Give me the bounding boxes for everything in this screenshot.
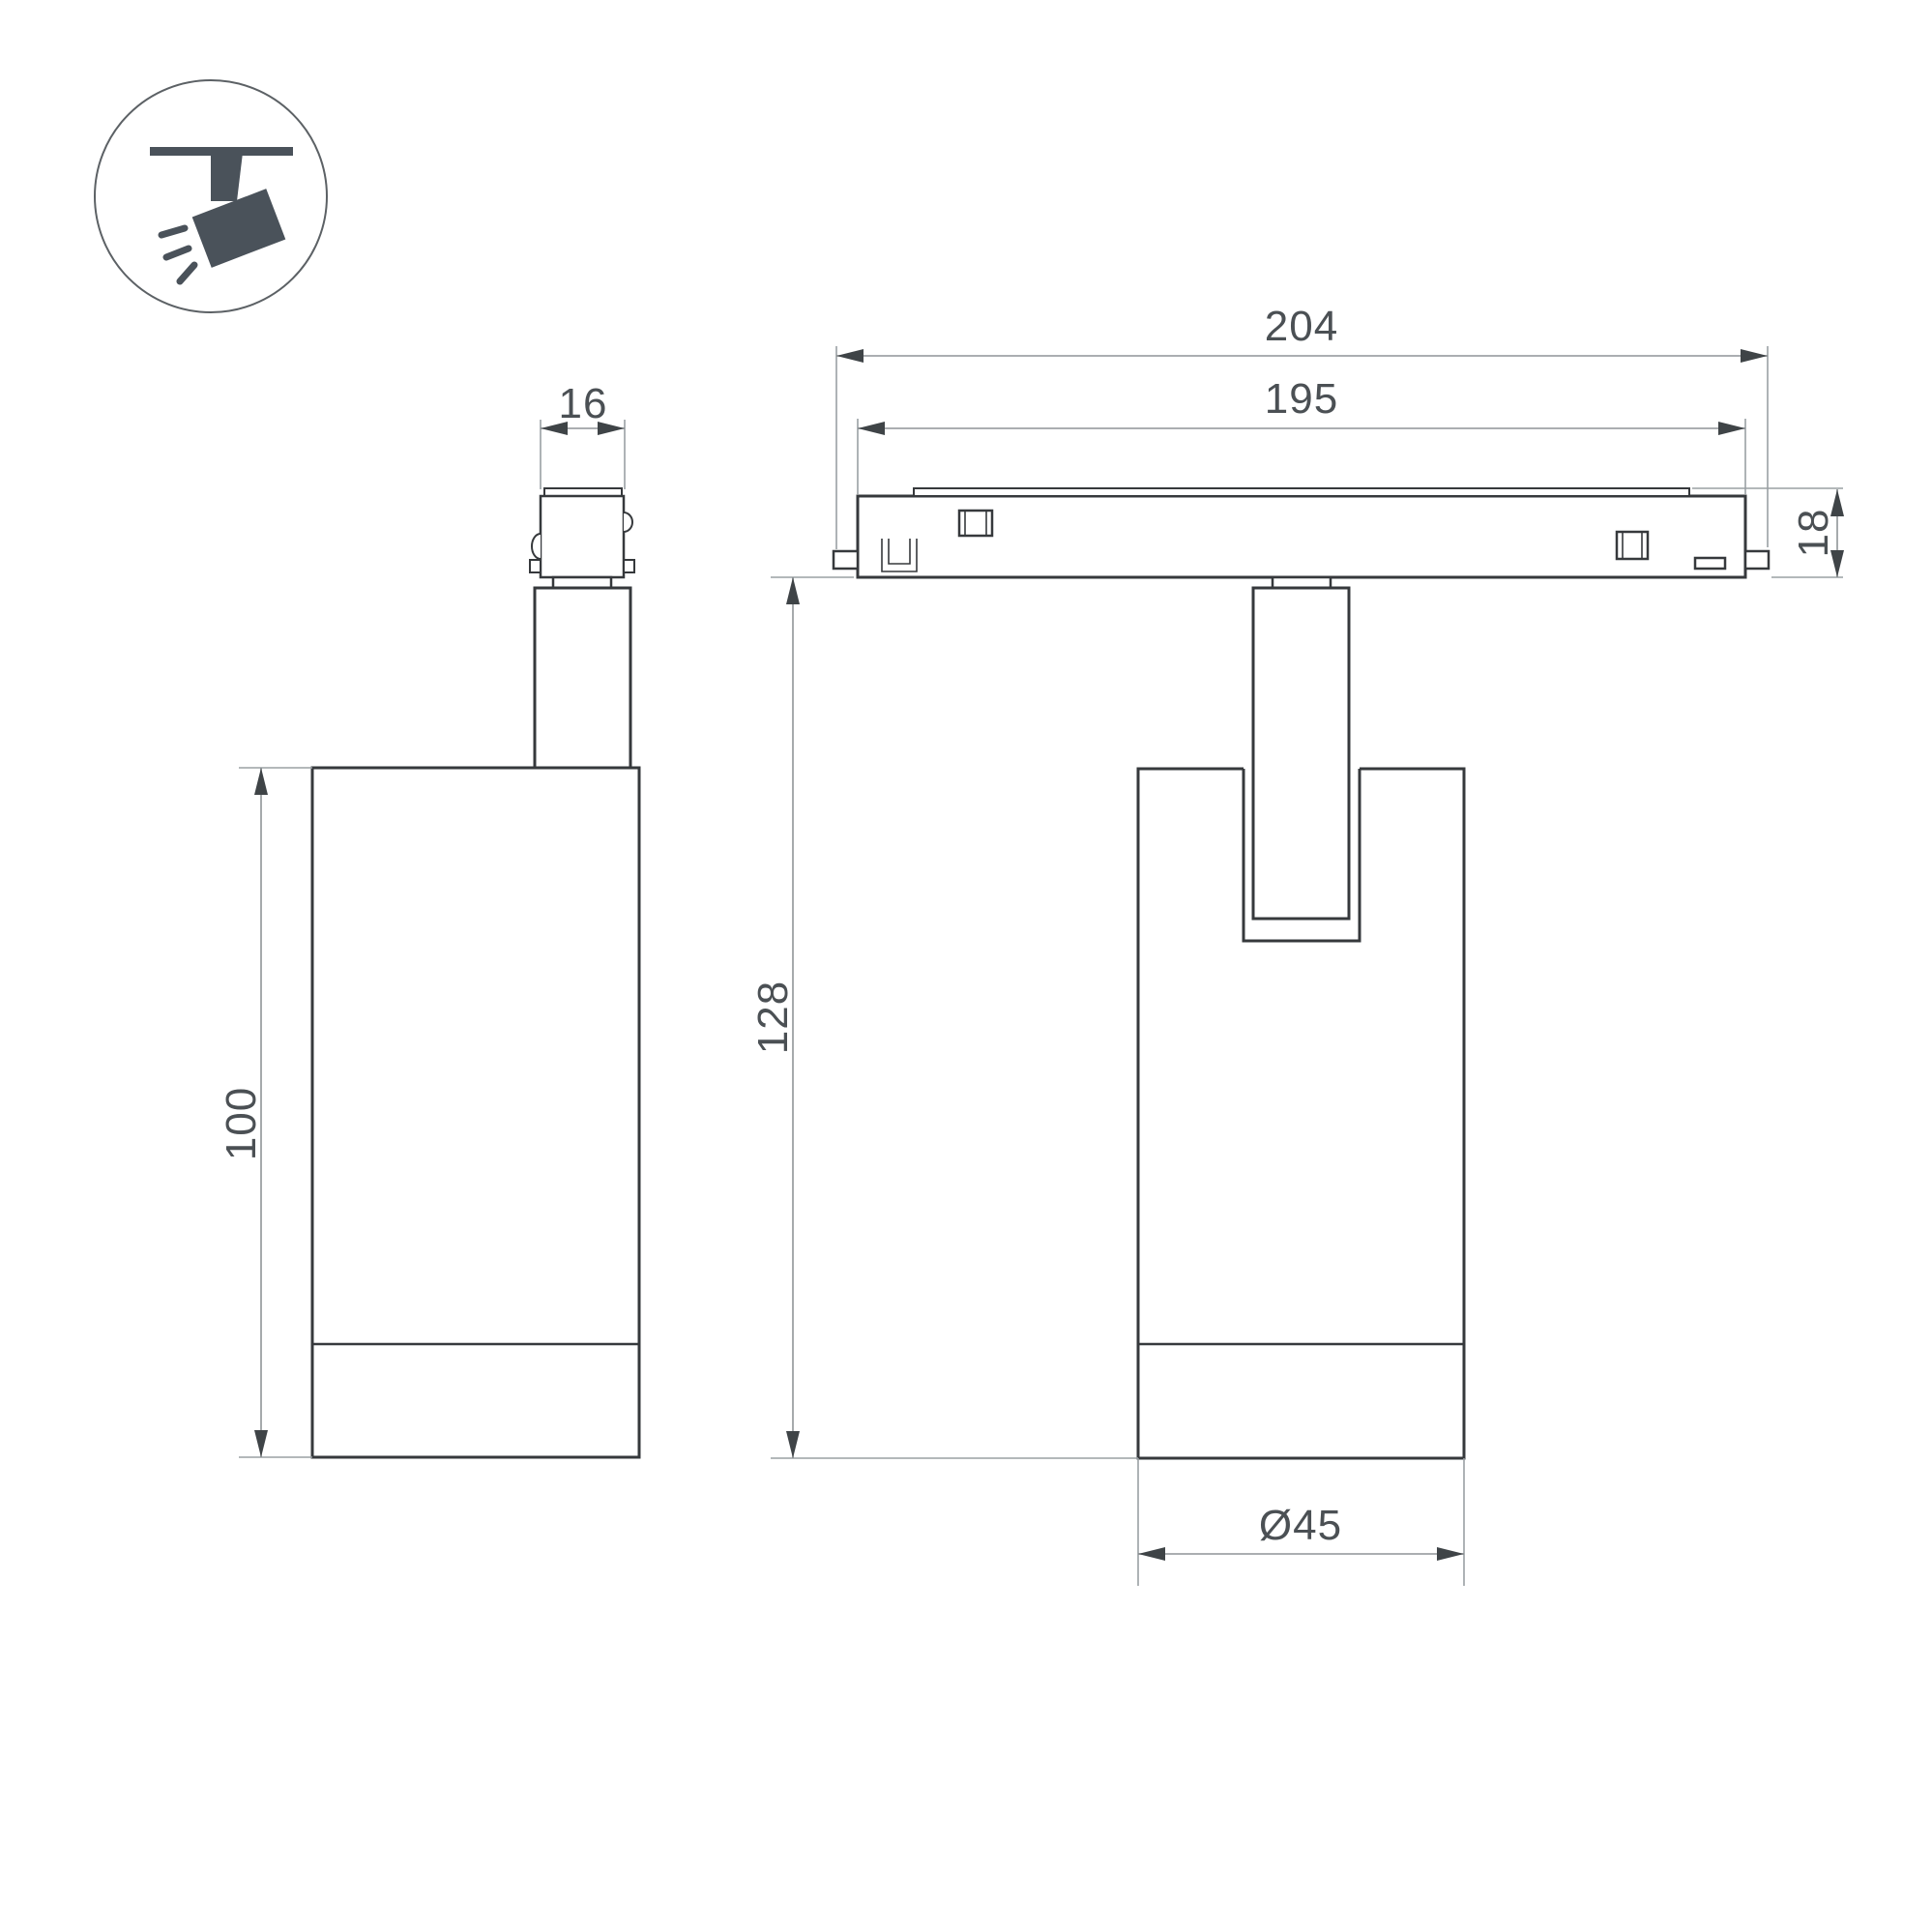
track-top-rail	[914, 488, 1689, 496]
track-window-right	[1617, 532, 1648, 559]
side-view: 16 100	[218, 380, 639, 1457]
dimension-track-length: 195	[858, 375, 1745, 494]
dimension-drawing: 16 100	[0, 0, 1932, 1932]
track-window-left	[959, 511, 992, 536]
connector-ear-left	[532, 534, 541, 559]
stem	[535, 588, 630, 768]
dim-label-204: 204	[1265, 303, 1338, 350]
connector-box	[541, 496, 624, 577]
arrowhead	[1741, 349, 1768, 363]
dim-label-d45: Ø45	[1259, 1502, 1342, 1549]
arrowhead	[858, 422, 885, 435]
dimension-stem-width: 16	[541, 380, 625, 489]
lamp-body	[312, 768, 639, 1457]
drawing-canvas: 16 100	[0, 0, 1932, 1932]
arrowhead	[786, 577, 800, 604]
arrowhead	[254, 768, 268, 795]
connector-ear-right	[624, 512, 632, 532]
track-end-tab-left	[834, 551, 858, 569]
arrowhead	[1718, 422, 1745, 435]
connector-foot-left	[530, 560, 541, 572]
track-end-tab-right	[1745, 551, 1769, 569]
arrowhead	[1437, 1547, 1464, 1561]
arrowhead	[254, 1430, 268, 1457]
dim-label-100: 100	[218, 1087, 265, 1160]
dimension-overall-height: 128	[749, 577, 1138, 1458]
dimension-body-diameter: Ø45	[1138, 1458, 1464, 1586]
arrowhead	[786, 1431, 800, 1458]
dim-label-195: 195	[1265, 375, 1338, 423]
dim-label-18: 18	[1790, 509, 1837, 558]
dim-label-128: 128	[749, 981, 797, 1054]
arrowhead	[1138, 1547, 1165, 1561]
connector-foot-right	[624, 560, 634, 572]
arrowhead	[836, 349, 864, 363]
pivot-neck	[553, 577, 611, 588]
track-spotlight-icon	[95, 80, 327, 312]
pivot-neck	[1273, 577, 1331, 588]
dimension-body-height: 100	[218, 768, 312, 1457]
stem	[1253, 588, 1349, 919]
front-view: 204 195 18 128	[749, 303, 1844, 1586]
track-slot-right	[1695, 558, 1725, 569]
dim-label-16: 16	[559, 380, 608, 427]
